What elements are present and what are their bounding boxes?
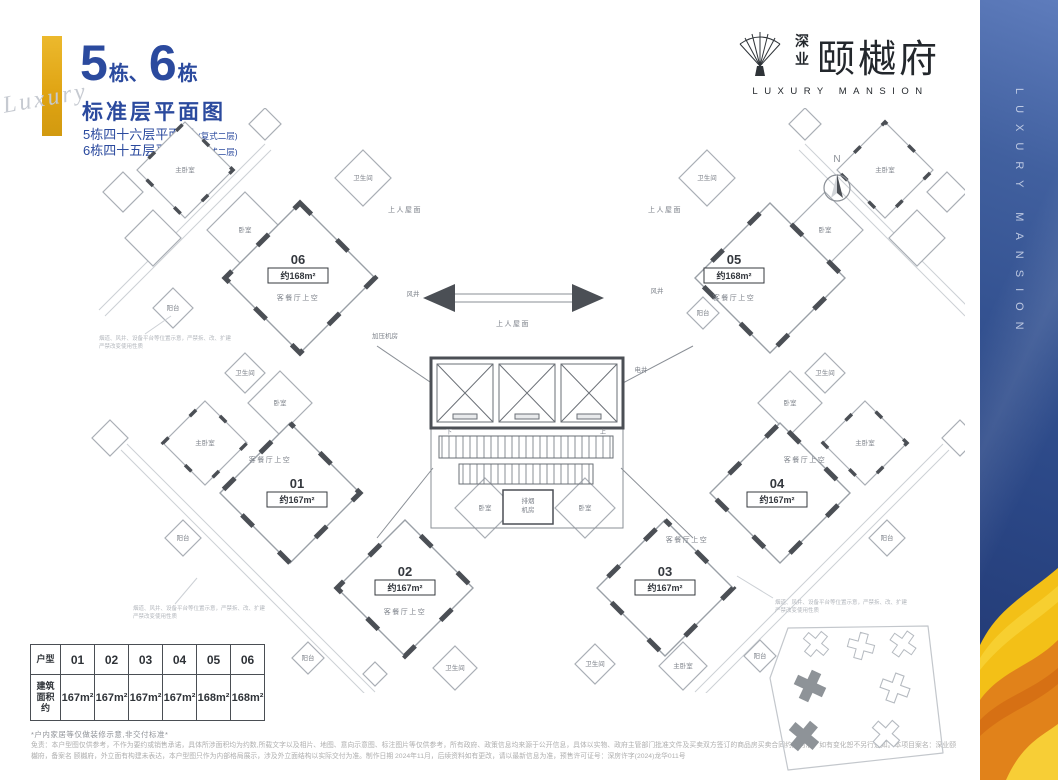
room-label: 阳台 (697, 308, 710, 317)
stairs (459, 464, 593, 484)
room-label: 卧室 (479, 503, 493, 512)
annotation-text: 严禁改变使用性质 (133, 612, 178, 620)
building-5-suffix: 栋、 (109, 63, 149, 85)
room-label: 阳台 (881, 533, 894, 542)
room-label: 卫生间 (235, 368, 255, 377)
room-label: 阳台 (302, 653, 315, 662)
table-cell-area: 167m² (61, 675, 95, 721)
unit-number: 04 (770, 476, 785, 491)
roof-bridge: 上人屋面 (423, 284, 604, 328)
table-cell-unit: 04 (163, 645, 197, 675)
compass-needle-light (831, 174, 837, 198)
table-cell-unit: 01 (61, 645, 95, 675)
table-cell-unit: 02 (95, 645, 129, 675)
fan-logo-icon (733, 28, 787, 80)
table-cell-area: 167m² (129, 675, 163, 721)
unit-number: 05 (727, 252, 741, 267)
stair-down-label: 下 (446, 429, 452, 436)
table-cell-area: 167m² (163, 675, 197, 721)
brochure-page: { "title": { "num1": "5", "suffix1": "栋、… (0, 0, 1058, 780)
room-label: 卫生间 (697, 173, 717, 182)
roof-label: 上人屋面 (388, 205, 422, 214)
room-label: 卧室 (579, 503, 593, 512)
room-label: 风井 (407, 289, 421, 298)
room-label: 卧室 (819, 225, 833, 234)
building-outline (877, 670, 914, 707)
building-outline (845, 630, 877, 662)
unit-area: 约168m² (280, 270, 315, 281)
logo-brand-cn: 深业 (795, 34, 811, 70)
room-label: 卫生间 (445, 663, 465, 672)
unit-area: 约167m² (279, 494, 314, 505)
unit-number: 03 (658, 564, 672, 579)
annotation-text: 烟道、风井、设备平台等位置示意，严禁拆、改、扩建 (99, 334, 232, 342)
room-label: 卫生间 (353, 173, 373, 182)
building-outline (866, 714, 906, 754)
room-label: 客餐厅上空 (277, 293, 320, 302)
building-6-suffix: 栋 (178, 63, 198, 85)
room-label: 客餐厅上空 (784, 455, 827, 464)
roof-label: 上人屋面 (648, 205, 682, 214)
room-label: 主卧室 (673, 661, 693, 670)
table-cell-area: 168m² (231, 675, 265, 721)
building-outline (885, 626, 921, 662)
north-label: N (833, 154, 840, 165)
room-label: 阳台 (754, 651, 767, 660)
table-cell-unit: 06 (231, 645, 265, 675)
unit-06: 主卧室 卧室 卫生间 阳台 风井 加压机房 上人屋面 06 约168m² 客餐厅… (103, 108, 422, 353)
room-label: 客餐厅上空 (249, 455, 292, 464)
decoration-note: *户内家居等仅做装修示意,非交付标准* (31, 729, 168, 740)
table-header-area: 建筑面积约 (31, 675, 61, 721)
table-cell-unit: 03 (129, 645, 163, 675)
unit-area: 约167m² (759, 494, 794, 505)
annotation-text: 严禁改变使用性质 (775, 606, 820, 614)
room-label: 阳台 (167, 303, 180, 312)
unit-number: 02 (398, 564, 412, 579)
bridge-arrow-right (572, 284, 604, 312)
brand-logo: 深业 颐樾府 LUXURY MANSION (733, 28, 948, 97)
table-row: 建筑面积约 167m² 167m² 167m² 167m² 168m² 168m… (31, 675, 265, 721)
room-label: 卧室 (239, 225, 253, 234)
stair-up-label: 上 (600, 428, 606, 436)
room-label: 客餐厅上空 (666, 535, 709, 544)
room-label: 主卧室 (875, 165, 895, 174)
table-cell-unit: 05 (197, 645, 231, 675)
building-6-highlighted (783, 715, 825, 757)
bridge-arrow-left (423, 284, 455, 312)
table-header-unit-type: 户型 (31, 645, 61, 675)
room-label: 主卧室 (855, 438, 875, 447)
unit-number: 06 (291, 252, 305, 267)
unit-area: 约167m² (647, 582, 682, 593)
logo-name-cn: 颐樾府 (817, 28, 940, 83)
elevator-shafts (437, 364, 617, 422)
room-label: 排烟 (522, 496, 536, 505)
room-label: 风井 (651, 286, 665, 295)
building-5-highlighted (790, 666, 830, 706)
site-buildings (783, 626, 921, 757)
floor-plan-svg: 主卧室 卧室 卫生间 阳台 风井 加压机房 上人屋面 06 约168m² 客餐厅… (75, 108, 965, 693)
room-label: 阳台 (177, 533, 190, 542)
unit-01: 主卧室 卧室 卫生间 阳台 客餐厅上空 01 约167m² (92, 353, 360, 563)
table-cell-area: 168m² (197, 675, 231, 721)
site-plan-key (768, 616, 953, 778)
room-label: 卧室 (274, 398, 288, 407)
unit-05: 主卧室 卧室 卫生间 阳台 风井 上人屋面 05 约168m² 客餐厅上空 (648, 108, 965, 353)
room-label: 客餐厅上空 (384, 607, 427, 616)
table-row: 户型 01 02 03 04 05 06 (31, 645, 265, 675)
room-label: 卧室 (784, 398, 798, 407)
room-label: 卫生间 (585, 659, 605, 668)
page-title: 5栋、6栋 (80, 34, 198, 92)
unit-04: 主卧室 卧室 卫生间 阳台 客餐厅上空 04 约167m² (710, 353, 965, 563)
room-label: 主卧室 (175, 165, 195, 174)
unit-number: 01 (290, 476, 304, 491)
room-label: 加压机房 (372, 331, 398, 340)
table-cell-area: 167m² (95, 675, 129, 721)
building-outline (798, 626, 835, 663)
room-label: 卫生间 (815, 368, 835, 377)
banner-vertical-text: LUXURY MANSION (1013, 88, 1025, 341)
gold-fabric-graphic (980, 550, 1058, 780)
fan-logo-stem (755, 66, 765, 76)
unit-area: 约167m² (387, 582, 422, 593)
unit-area-table: 户型 01 02 03 04 05 06 建筑面积约 167m² 167m² 1… (30, 644, 265, 721)
floor-plan: 主卧室 卧室 卫生间 阳台 风井 加压机房 上人屋面 06 约168m² 客餐厅… (75, 108, 965, 693)
stairs (439, 436, 613, 458)
annotation-text: 烟道、风井、设备平台等位置示意，严禁拆、改、扩建 (775, 598, 908, 606)
unit-area: 约168m² (716, 270, 751, 281)
room-label: 客餐厅上空 (713, 293, 756, 302)
building-5-number: 5 (80, 35, 109, 91)
logo-name-en: LUXURY MANSION (733, 86, 948, 97)
annotation-text: 严禁改变使用性质 (99, 342, 144, 350)
roof-walkway-label: 上人屋面 (496, 319, 530, 328)
room-label: 主卧室 (195, 438, 215, 447)
brand-banner: LUXURY MANSION (980, 0, 1058, 780)
room-label: 电井 (635, 365, 649, 374)
annotation-text: 烟道、风井、设备平台等位置示意，严禁拆、改、扩建 (133, 604, 266, 612)
room-label: 机房 (522, 505, 535, 514)
building-6-number: 6 (149, 35, 178, 91)
